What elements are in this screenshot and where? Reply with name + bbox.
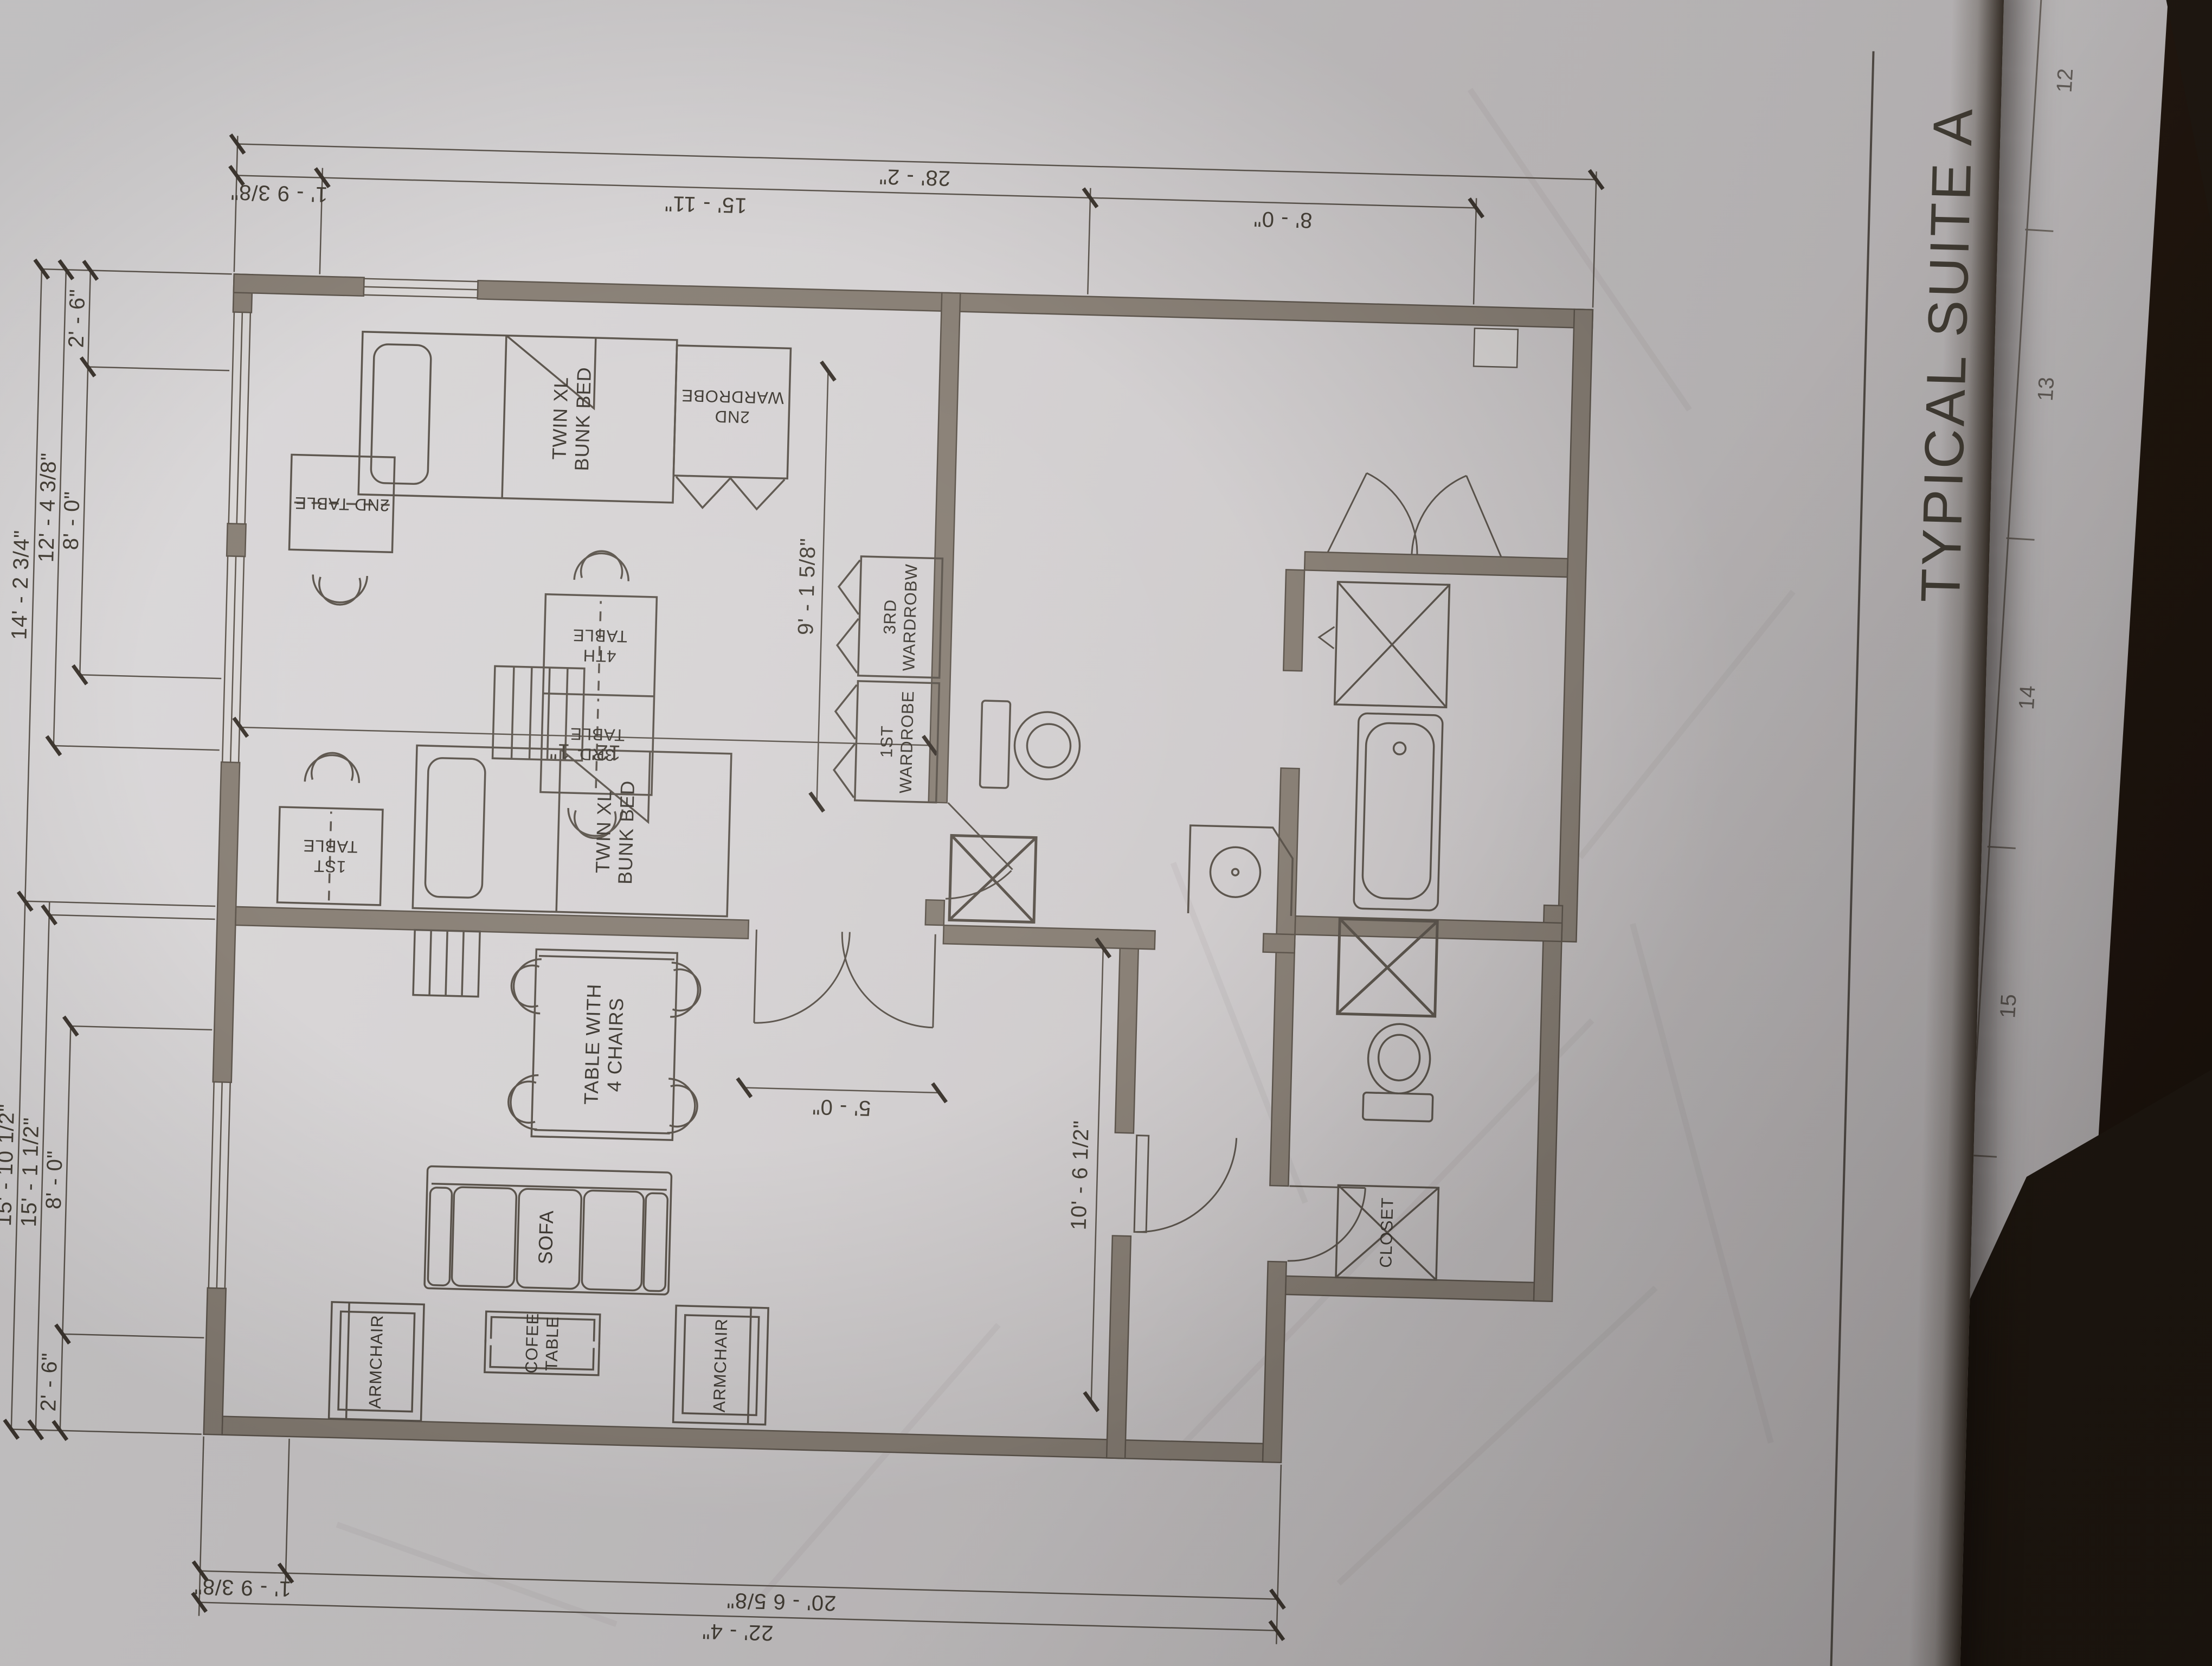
console-symbol bbox=[413, 930, 480, 997]
wall-niche bbox=[1474, 328, 1518, 367]
label-sofa: SOFA bbox=[534, 1210, 558, 1265]
wardrobe-2nd-symbol bbox=[673, 345, 791, 510]
toilet-2-symbol bbox=[1363, 1023, 1435, 1122]
dim-top-mid-right: 12' - 4 3/8" bbox=[34, 452, 62, 563]
label-table-3: 3RD TABLE bbox=[569, 723, 625, 765]
label-table-1: 1ST TABLE bbox=[302, 836, 358, 877]
photo-of-floor-plan: 12 13 14 15 16 17 bbox=[0, 0, 2212, 1666]
dim-top-mid-left: 15' - 1 1/2" bbox=[16, 1117, 44, 1227]
chair-icon bbox=[667, 1079, 698, 1133]
dim-living-width: 10' - 6 1/2" bbox=[1066, 1120, 1095, 1231]
floor-plan-sheet: 15' - 10 1/2" 14' - 2 3/4" 15' - 1 1/2" … bbox=[0, 0, 2005, 1666]
shower-symbol bbox=[1317, 581, 1450, 707]
dim-top-inner-right: 8' - 0" bbox=[59, 491, 86, 550]
hall-door-symbol bbox=[1134, 1136, 1237, 1235]
label-armchair-1: ARMCHAIR bbox=[365, 1315, 388, 1409]
dim-top-inner-far-right: 2' - 6" bbox=[63, 289, 91, 348]
chair-icon bbox=[511, 958, 542, 1013]
label-wardrobe-2: 2ND WARDROBE bbox=[680, 386, 784, 428]
toilet-1-symbol bbox=[980, 701, 1081, 790]
walls bbox=[204, 274, 1593, 1470]
entry-french-doors-symbol bbox=[1328, 472, 1503, 557]
dim-hall-opening: 5' - 0" bbox=[812, 1093, 871, 1120]
label-coffee-table: COFEE TABLE bbox=[522, 1312, 563, 1374]
dim-right-seg-bottom: 8' - 0" bbox=[1253, 206, 1313, 233]
dim-left-outer: 22' - 4" bbox=[702, 1618, 774, 1645]
annex-door-symbol bbox=[1288, 1186, 1366, 1263]
desk-3rd-4th-symbol bbox=[541, 594, 657, 795]
bunk-bed-1-symbol bbox=[358, 332, 677, 503]
french-doors-symbol bbox=[754, 930, 935, 1028]
label-bunk-bed-1: TWIN XL BUNK BED bbox=[548, 366, 596, 471]
bath-door-symbol bbox=[946, 803, 1014, 900]
bathtub-symbol bbox=[1354, 713, 1443, 911]
chair-icon bbox=[305, 752, 359, 783]
label-armchair-2: ARMCHAIR bbox=[710, 1318, 732, 1413]
label-wardrobe-1: 1ST WARDROBE bbox=[876, 690, 918, 793]
dim-top-inner-left: 8' - 0" bbox=[41, 1150, 68, 1209]
dim-left-seg-top: 1' - 9 3/8" bbox=[194, 1573, 292, 1601]
dim-right-seg-top: 1' - 9 3/8" bbox=[230, 179, 328, 207]
dim-top-outer-right: 14' - 2 3/4" bbox=[7, 529, 35, 640]
title-block-line bbox=[1830, 51, 1874, 1666]
label-closet: CLOSET bbox=[1376, 1197, 1398, 1268]
drawing-area: 15' - 10 1/2" 14' - 2 3/4" 15' - 1 1/2" … bbox=[0, 2, 2111, 1666]
chair-icon bbox=[507, 1074, 538, 1129]
dim-wardrobe-row: 9' - 1 5/8" bbox=[793, 537, 821, 636]
dim-top-inner-far-left: 2' - 6" bbox=[36, 1352, 63, 1412]
label-table-2: 2ND TABLE bbox=[294, 492, 390, 515]
chair-icon bbox=[670, 963, 701, 1017]
dim-left-seg-main: 20' - 6 5/8" bbox=[726, 1587, 837, 1615]
sheet-title: TYPICAL SUITE A bbox=[1908, 105, 1986, 604]
floor-plan-drawing bbox=[0, 2, 2111, 1666]
chair-icon bbox=[312, 574, 367, 605]
label-bunk-bed-2: TWIN XL BUNK BED bbox=[591, 779, 640, 885]
bunk-bed-2-symbol bbox=[413, 746, 731, 917]
label-dining-table: TABLE WITH 4 CHAIRS bbox=[580, 983, 629, 1106]
label-table-4: 4TH TABLE bbox=[572, 625, 628, 666]
dim-right-seg-mid: 15' - 11" bbox=[664, 190, 748, 218]
dim-right-outer: 28' - 2" bbox=[878, 163, 950, 191]
windows bbox=[209, 275, 478, 1295]
chair-icon bbox=[574, 550, 629, 581]
label-wardrobe-3: 3RD WARDROBW bbox=[879, 563, 921, 671]
